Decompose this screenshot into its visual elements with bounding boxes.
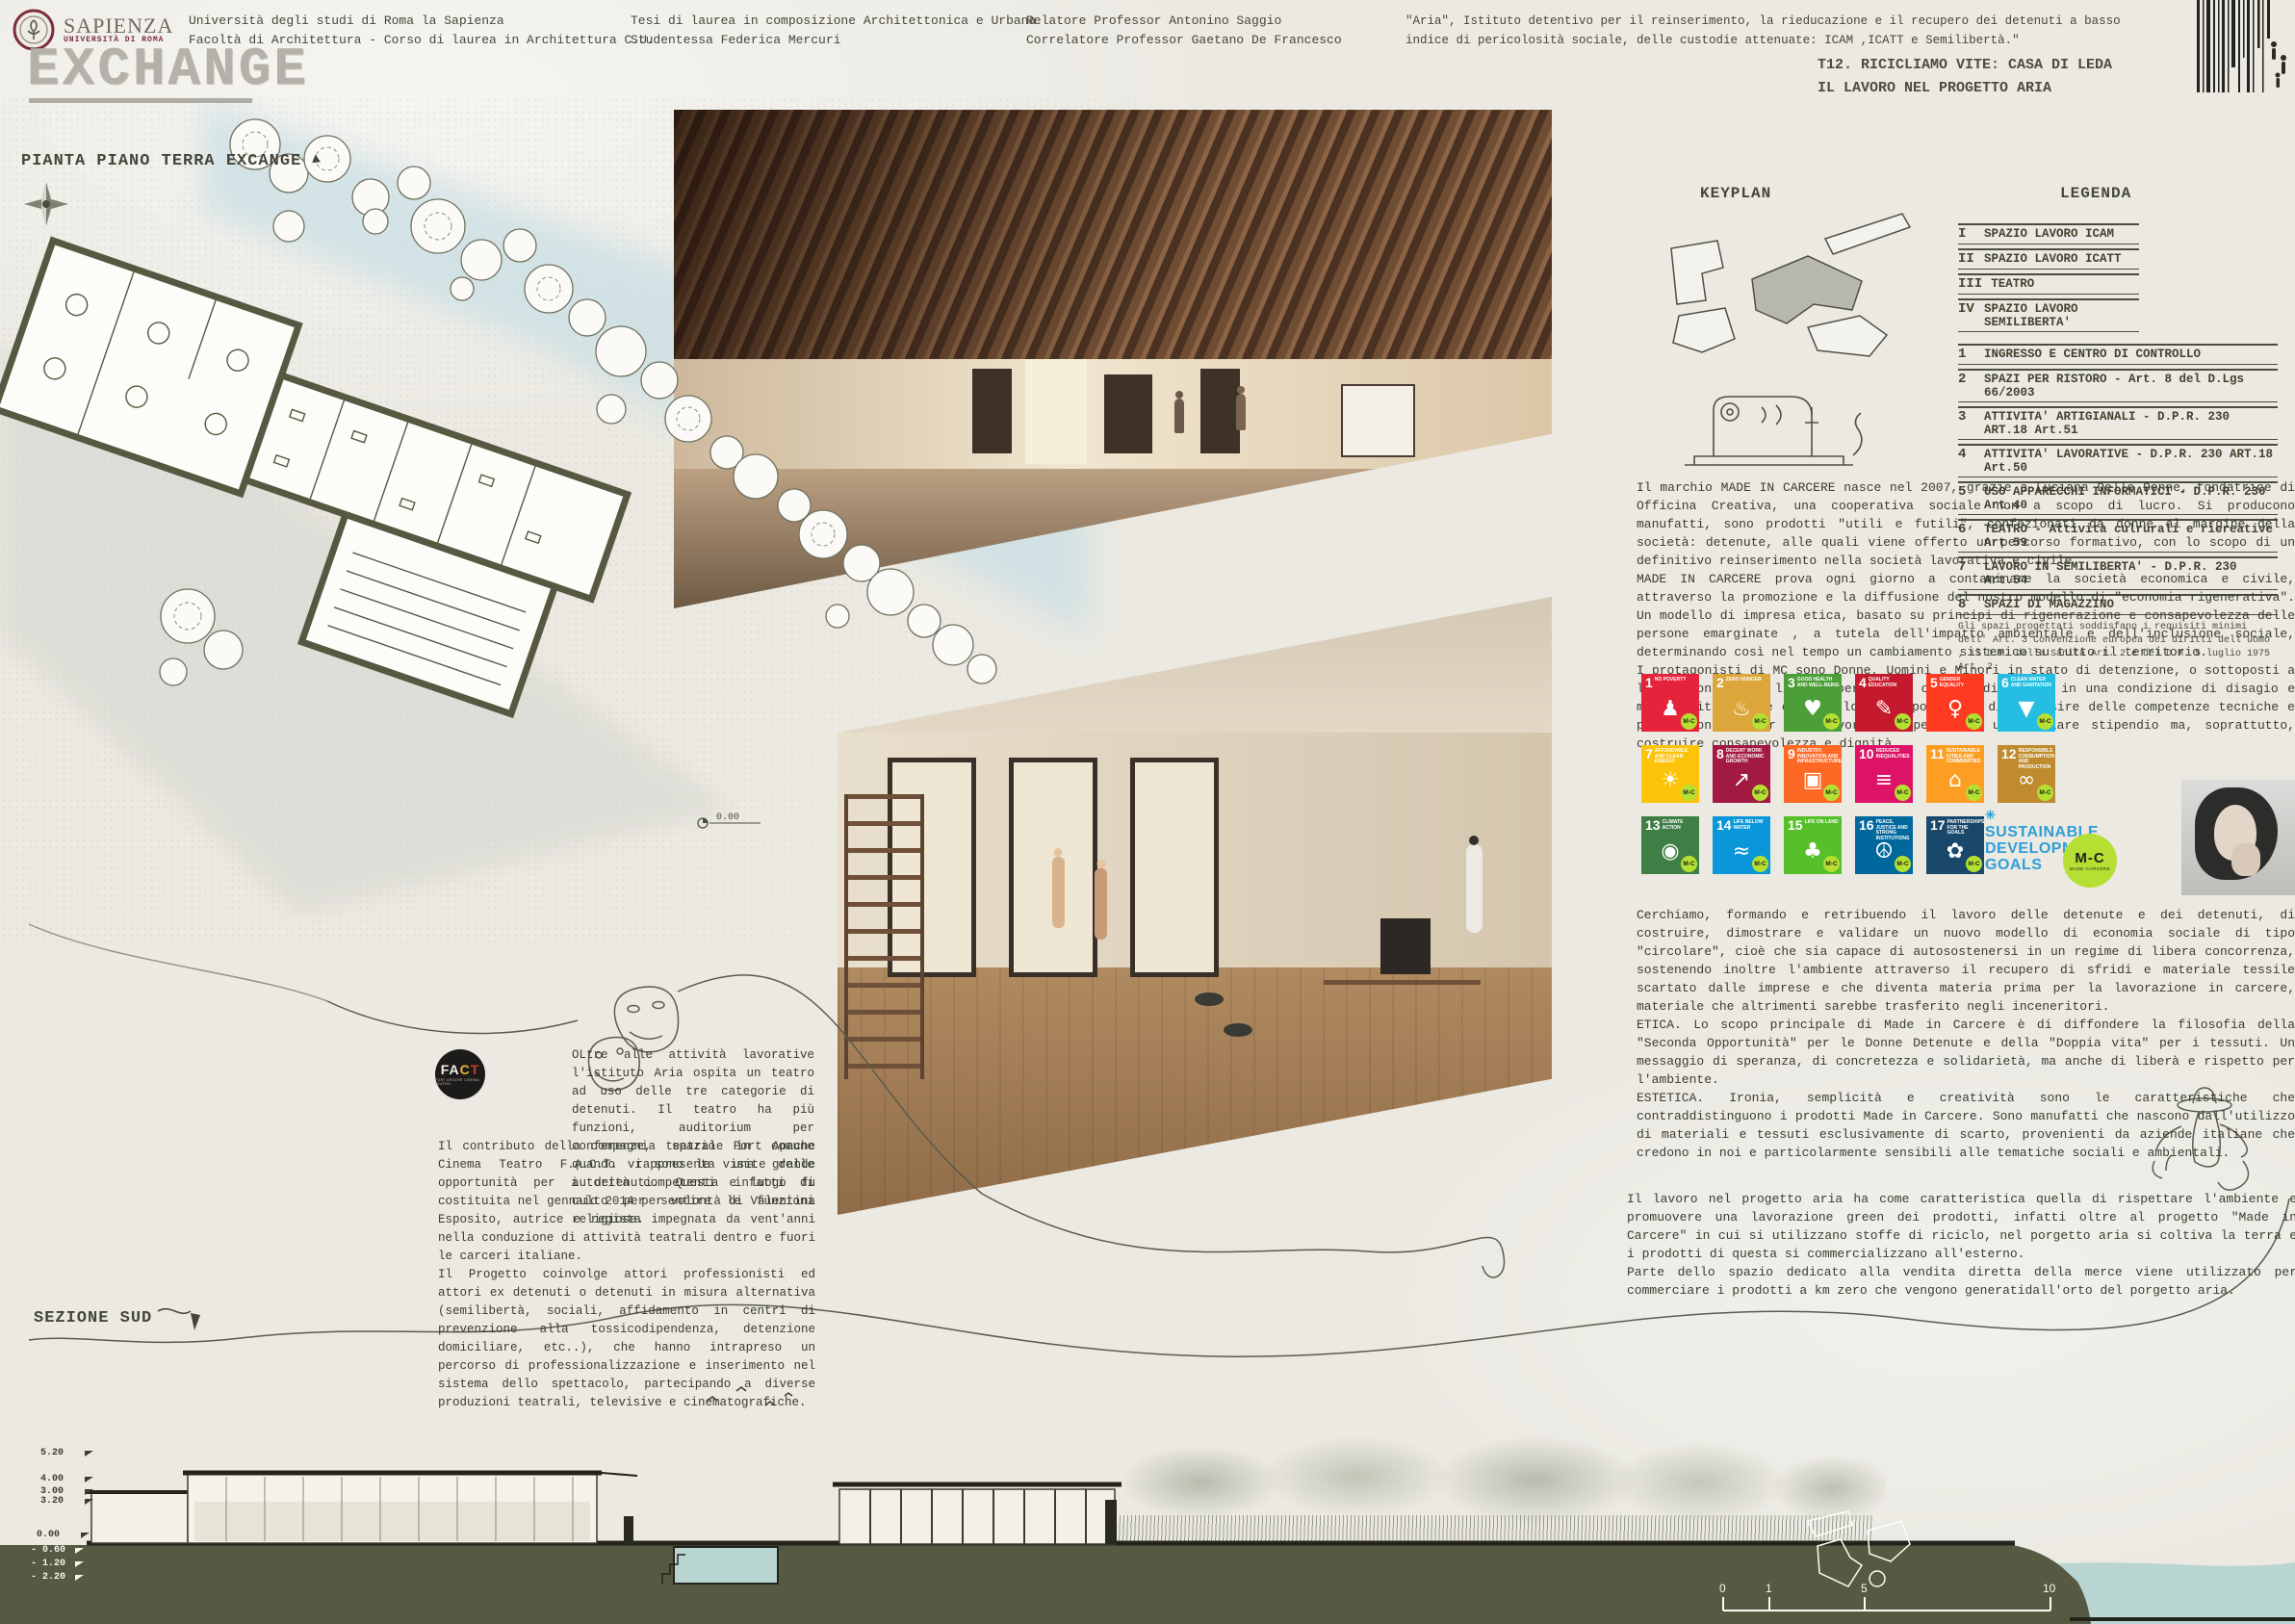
window [1130, 758, 1219, 977]
pool [674, 1547, 778, 1584]
sdg-tile-17: 17PARTNERSHIPS FOR THE GOALS✿M-C [1926, 816, 1984, 874]
lavoro-progetto-aria-text: Il lavoro nel progetto aria ha come cara… [1627, 1190, 2295, 1300]
mannequin [1095, 868, 1107, 940]
photo-portrait [2181, 780, 2295, 895]
whiteboard [1341, 384, 1415, 458]
sewing-machine-sketch [1670, 369, 1872, 475]
student-line: Studentessa Federica Mercuri [631, 31, 1036, 50]
title-underline [29, 98, 252, 103]
mc-badge-icon: M-C [1966, 785, 1982, 801]
level-mark: 3.20 [40, 1496, 64, 1507]
page-title: EXCHANGE [27, 39, 309, 100]
plan-title: PIANTA PIANO TERRA EXCANGE ▲ [21, 152, 322, 170]
sdg-tile-14: 14LIFE BELOW WATER≈M-C [1713, 816, 1770, 874]
mc-badge-icon: M-C [1823, 713, 1840, 730]
keyplan-title: KEYPLAN [1700, 185, 1771, 202]
north-arrow-icon: ▲ [311, 151, 322, 168]
legend-item: 2SPAZI PER RISTORO - Art. 8 del D.Lgs 66… [1958, 369, 2278, 402]
mc-badge-icon: M-C [1823, 856, 1840, 872]
keyplan-highlight [1752, 256, 1862, 323]
co-advisor-line: Correlatore Professor Gaetano De Frances… [1026, 31, 1342, 50]
header-thesis: Tesi di laurea in composizione Architett… [631, 12, 1036, 50]
level-mark: 0.00 [37, 1530, 60, 1540]
person-figure [1466, 844, 1483, 933]
svg-text:1: 1 [1766, 1582, 1772, 1595]
sdg-tile-10: 10REDUCED INEQUALITIES≡M-C [1855, 745, 1913, 803]
logo-title: SAPIENZA [64, 16, 173, 36]
legend-item: 1INGRESSO E CENTRO DI CONTROLLO [1958, 344, 2278, 365]
section-arrow-icon [156, 1302, 210, 1334]
mc-badge-icon: M-C [1895, 713, 1911, 730]
sdg-tile-15: 15LIFE ON LAND♣M-C [1784, 816, 1842, 874]
legend-item: ISPAZIO LAVORO ICAM [1958, 223, 2139, 245]
sdg-tile-6: 6CLEAN WATER AND SANITATION▼M-C [1998, 674, 2055, 732]
mannequin [1052, 857, 1065, 928]
legend-title: LEGENDA [2060, 185, 2131, 202]
door [972, 369, 1012, 453]
sdg-tile-1: 1NO POVERTY♟M-C [1641, 674, 1699, 732]
thesis-line: Tesi di laurea in composizione Architett… [631, 12, 1036, 31]
barcode-graphic [2197, 0, 2291, 94]
level-mark: - 0.60 [31, 1545, 65, 1556]
sdg-tile-9: 9INDUSTRY, INNOVATION AND INFRASTRUCTURE… [1784, 745, 1842, 803]
aria-quote: "Aria", Istituto detentivo per il reinse… [1405, 12, 2147, 50]
desk [1324, 980, 1481, 985]
svg-text:5: 5 [1861, 1582, 1868, 1595]
figure [1236, 394, 1246, 430]
svg-text:0: 0 [1719, 1582, 1726, 1595]
mc-badge-icon: M-C [1752, 713, 1768, 730]
un-emblem-icon: ✳ [1985, 807, 2129, 823]
mc-badge-icon: M-C [1681, 785, 1697, 801]
figure [1174, 399, 1184, 433]
sdg-tile-7: 7AFFORDABLE AND CLEAN ENERGY☀M-C [1641, 745, 1699, 803]
basket [1224, 1023, 1252, 1037]
sdg-tile-12: 12RESPONSIBLE CONSUMPTION AND PRODUCTION… [1998, 745, 2055, 803]
shelving [844, 794, 923, 1078]
wood-beam-ceiling [674, 110, 1552, 369]
advisor-line: Relatore Professor Antonino Saggio [1026, 12, 1342, 31]
sdg-tile-4: 4QUALITY EDUCATION✎M-C [1855, 674, 1913, 732]
mc-badge-icon: M-C [1966, 713, 1982, 730]
legend-item: IISPAZIO LAVORO ICATT [1958, 248, 2139, 270]
mc-badge-icon: M-C [1752, 785, 1768, 801]
fact-body-text: Il contributo della compagnia teatrale F… [438, 1138, 815, 1412]
thesis-board: SAPIENZA UNIVERSITÀ DI ROMA Università d… [0, 0, 2295, 1624]
section-title: SEZIONE SUD [34, 1302, 210, 1334]
level-mark: - 1.20 [31, 1559, 65, 1569]
mc-badge-icon: M-C [1752, 856, 1768, 872]
bright-opening [1025, 359, 1087, 464]
mc-badge-icon: M-C [1823, 785, 1840, 801]
wood-floor [838, 967, 1552, 1215]
portrait-hand [2231, 843, 2260, 876]
computer-monitor [1380, 918, 1431, 974]
legend-item: IIITEATRO [1958, 273, 2139, 295]
svg-text:0.00: 0.00 [716, 812, 739, 823]
mc-badge-icon: M-C [1895, 856, 1911, 872]
level-mark: 4.00 [40, 1474, 64, 1484]
door [1104, 374, 1152, 454]
mc-badge-icon: M-C [2037, 785, 2053, 801]
mc-badge-icon: M-C [1895, 785, 1911, 801]
economia-circolare-text: Cerchiamo, formando e retribuendo il lav… [1637, 906, 2295, 1162]
university-line: Università degli studi di Roma la Sapien… [189, 12, 655, 31]
barcode-figures-icon [2271, 41, 2286, 88]
header-advisors: Relatore Professor Antonino Saggio Corre… [1026, 12, 1342, 50]
keyplan-drawing [1663, 212, 1923, 361]
legend-item: IVSPAZIO LAVORO SEMILIBERTA' [1958, 298, 2139, 332]
legend-item: 4ATTIVITA' LAVORATIVE - D.P.R. 230 ART.1… [1958, 444, 2278, 477]
level-mark: - 2.20 [31, 1572, 65, 1583]
plan-level-mark: 0.00 [698, 812, 761, 828]
sdg-tile-16: 16PEACE, JUSTICE AND STRONG INSTITUTIONS… [1855, 816, 1913, 874]
door [1200, 369, 1240, 453]
sdg-tile-11: 11SUSTAINABLE CITIES AND COMMUNITIES⌂M-C [1926, 745, 1984, 803]
level-mark: 5.20 [40, 1448, 64, 1458]
sdg-tile-8: 8DECENT WORK AND ECONOMIC GROWTH↗M-C [1713, 745, 1770, 803]
mc-badge-icon: M-C [1966, 856, 1982, 872]
legend-item: 3ATTIVITA' ARTIGIANALI - D.P.R. 230 ART.… [1958, 406, 2278, 440]
sdg-tile-3: 3GOOD HEALTH AND WELL-BEING♥M-C [1784, 674, 1842, 732]
section-drawing: 0 1 5 10 [0, 1377, 2295, 1624]
mc-badge-icon: M-C [1681, 713, 1697, 730]
mc-badge-icon: M-C [2037, 713, 2053, 730]
sdg-tile-13: 13CLIMATE ACTION◉M-C [1641, 816, 1699, 874]
basket [1195, 992, 1224, 1006]
svg-text:10: 10 [2043, 1582, 2056, 1595]
made-in-carcere-logo: M-C MADE-CARCERE [2063, 834, 2117, 888]
mc-badge-icon: M-C [1681, 856, 1697, 872]
sdg-tile-5: 5GENDER EQUALITY♀M-C [1926, 674, 1984, 732]
fact-logo: FACT FORT APACHE CINEMA TEATRO [435, 1049, 485, 1099]
sdg-tile-2: 2ZERO HUNGER♨M-C [1713, 674, 1770, 732]
ground [0, 1545, 2091, 1624]
